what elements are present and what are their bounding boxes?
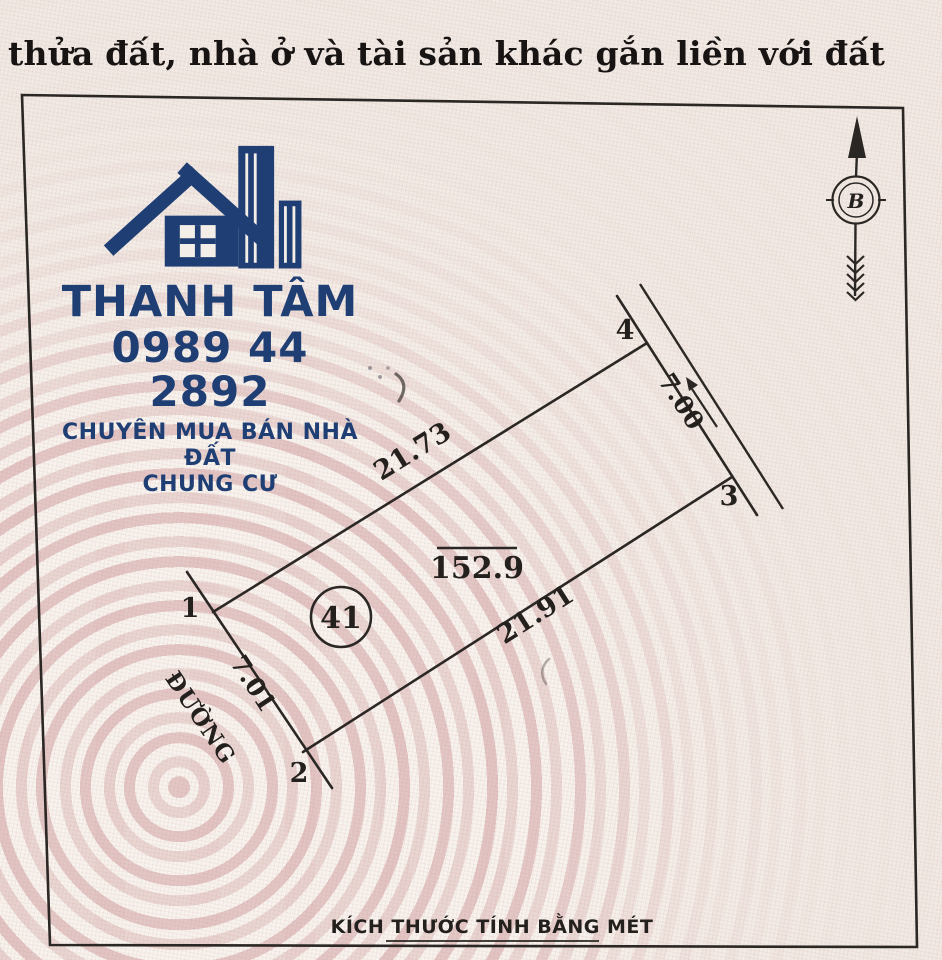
agency-phone: 0989 44 2892 bbox=[50, 326, 370, 414]
parcel-number-badge: 41 bbox=[311, 587, 371, 647]
corner-label-1: 1 bbox=[181, 593, 200, 624]
agency-tagline: CHUYÊN MUA BÁN NHÀ ĐẤT bbox=[50, 420, 370, 472]
agency-name: THANH TÂM bbox=[50, 280, 370, 324]
area-value: 152.9 bbox=[430, 551, 524, 586]
logo-window bbox=[180, 225, 216, 257]
dimension-21-73: 21.73 bbox=[368, 416, 456, 487]
road-label: ĐƯỜNG bbox=[159, 666, 241, 769]
compass-north-letter: B bbox=[847, 189, 865, 213]
north-arrow-head-icon bbox=[848, 116, 866, 158]
logo-small-building bbox=[279, 201, 302, 269]
certificate-page: thửa đất, nhà ở và tài sản khác gắn liền… bbox=[0, 0, 942, 960]
corner-label-4: 4 bbox=[616, 315, 635, 346]
corner-label-2: 2 bbox=[290, 758, 309, 789]
parcel-number: 41 bbox=[320, 601, 362, 636]
unit-note-text: KÍCH THƯỚC TÍNH BẰNG MÉT bbox=[331, 912, 654, 938]
dimension-7-01: 7.01 bbox=[224, 650, 281, 717]
corner-label-3: 3 bbox=[720, 481, 739, 512]
dimension-21-91: 21.91 bbox=[491, 579, 579, 651]
agency-watermark: THANH TÂM 0989 44 2892 CHUYÊN MUA BÁN NH… bbox=[50, 144, 370, 498]
logo-spire bbox=[263, 167, 269, 269]
agency-tagline2: CHUNG CƯ bbox=[50, 472, 370, 498]
area-label: 152.9 bbox=[430, 548, 524, 586]
north-compass: B bbox=[826, 116, 886, 300]
house-buildings-logo-icon bbox=[100, 144, 320, 276]
unit-note: KÍCH THƯỚC TÍNH BẰNG MÉT bbox=[331, 912, 654, 941]
